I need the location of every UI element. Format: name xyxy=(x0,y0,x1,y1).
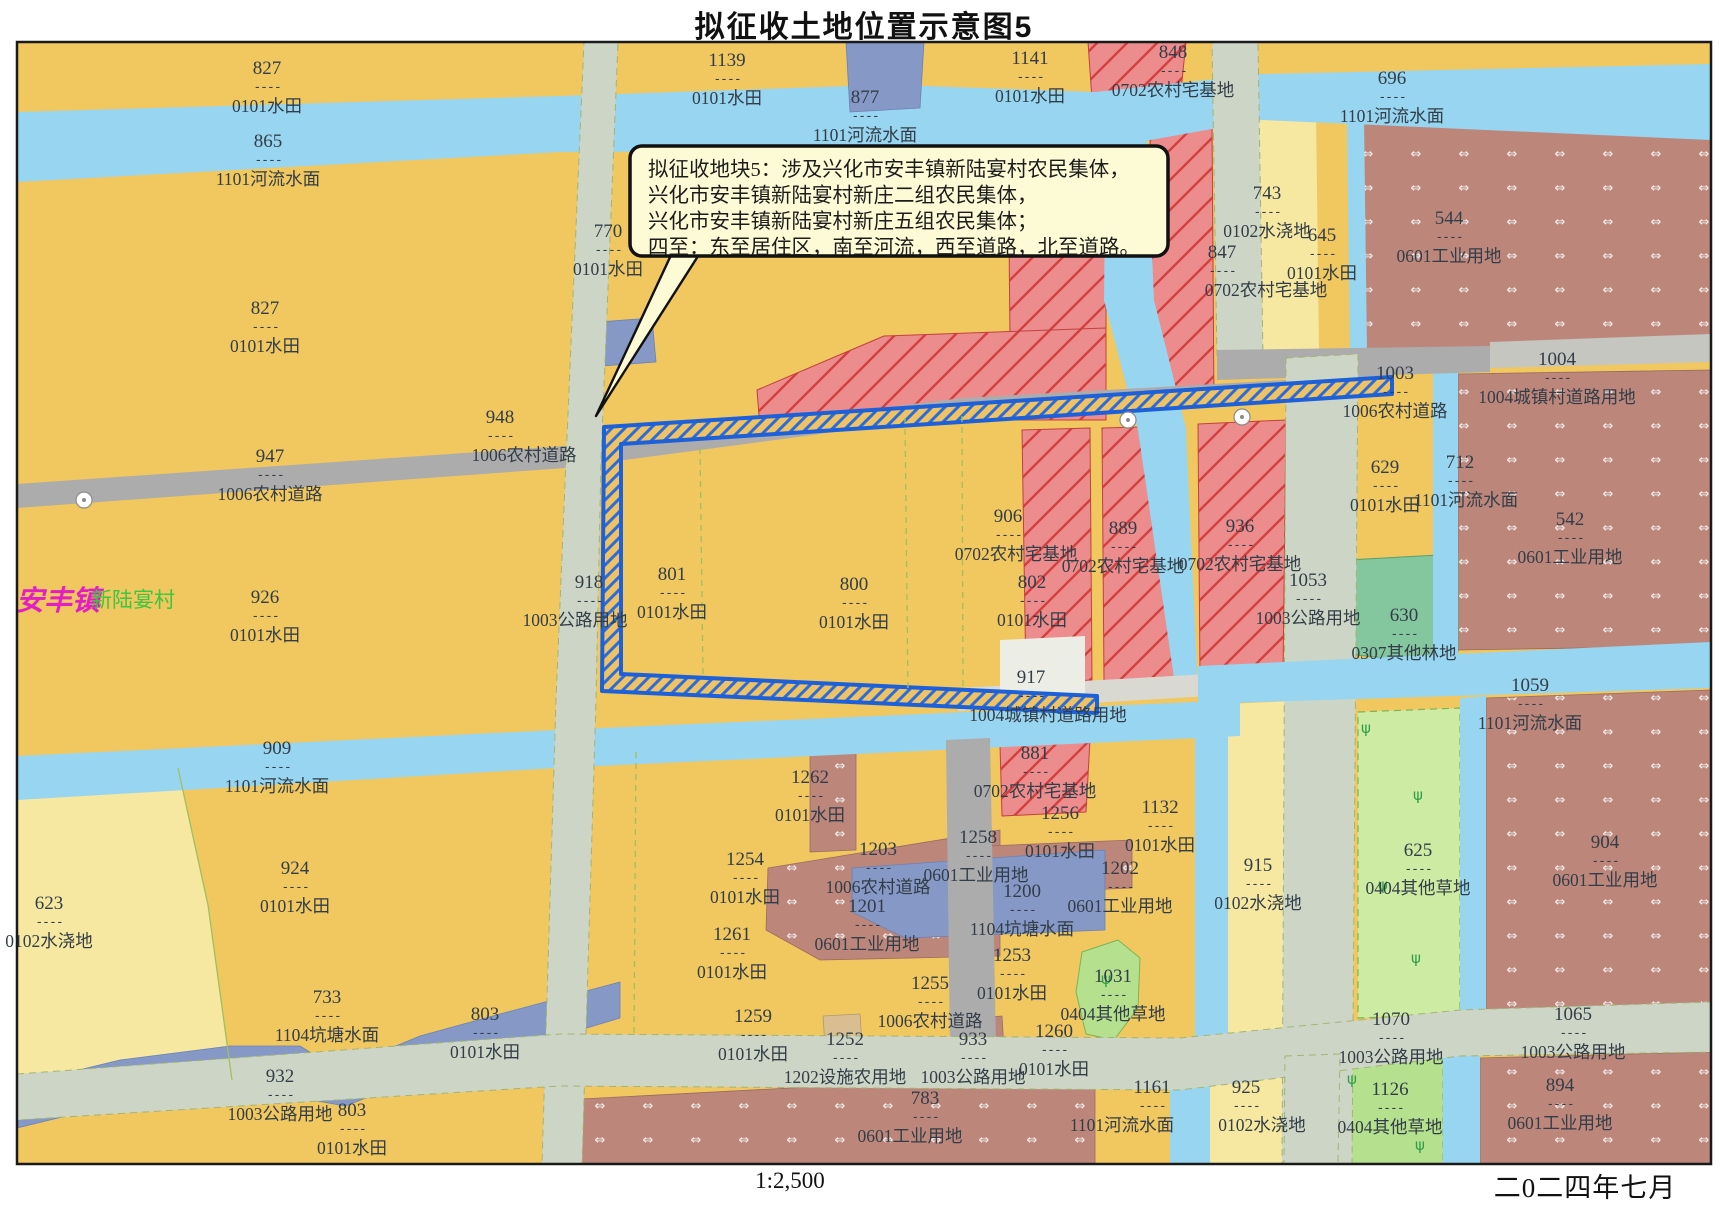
parcel-landuse: 1006农村道路 xyxy=(1343,401,1448,421)
parcel-number: 877 xyxy=(851,87,880,108)
grass-icon: ψ xyxy=(1411,949,1421,967)
parcel-landuse: 0404其他草地 xyxy=(1061,1004,1166,1024)
parcel-divider: ---- xyxy=(266,1088,293,1103)
parcel-number: 948 xyxy=(486,407,515,428)
parcel-number: 1254 xyxy=(726,849,765,870)
parcel-number: 1260 xyxy=(1035,1021,1073,1042)
parcel-landuse: 0102水浇地 xyxy=(5,931,93,951)
grass-icon: ψ xyxy=(1415,1136,1425,1154)
parcel-divider: ---- xyxy=(251,609,278,624)
parcel-landuse: 0702农村宅基地 xyxy=(1062,556,1185,576)
parcel-label-1258: 1258---- xyxy=(959,827,997,864)
parcel-number: 783 xyxy=(911,1088,940,1109)
parcel-number: 932 xyxy=(266,1066,295,1087)
map-svg: ⇔ψψψψψψψ827----0101水田865----1101河流水面827-… xyxy=(0,0,1728,1206)
parcel-landuse: 1101河流水面 xyxy=(813,125,917,145)
parcel-landuse: 1101河流水面 xyxy=(225,776,329,796)
parcel-landuse: 0102水浇地 xyxy=(1214,893,1302,913)
parcel-landuse: 0601工业用地 xyxy=(1518,547,1623,567)
parcel-number: 625 xyxy=(1404,840,1433,861)
parcel-divider: ---- xyxy=(1208,264,1235,279)
parcel-landuse: 0101水田 xyxy=(1019,1059,1089,1079)
parcel-divider: ---- xyxy=(1018,594,1045,609)
parcel-landuse: 0101水田 xyxy=(637,602,707,622)
parcel-landuse: 1101河流水面 xyxy=(1478,713,1582,733)
parcel-divider: ---- xyxy=(1017,689,1044,704)
parcel-landuse: 1006农村道路 xyxy=(472,445,577,465)
parcel-divider: ---- xyxy=(575,594,602,609)
region-river-strip-915 xyxy=(1195,702,1228,1046)
parcel-divider: ---- xyxy=(1226,538,1253,553)
parcel-divider: ---- xyxy=(796,789,823,804)
parcel-number: 924 xyxy=(281,858,310,879)
parcel-number: 801 xyxy=(658,564,687,585)
parcel-divider: ---- xyxy=(998,967,1025,982)
parcel-landuse: 1006农村道路 xyxy=(218,484,323,504)
parcel-landuse: 1004城镇村道路用地 xyxy=(1478,387,1636,407)
parcel-number: 915 xyxy=(1244,855,1273,876)
parcel-divider: ---- xyxy=(1543,371,1570,386)
parcel-landuse: 0101水田 xyxy=(230,625,300,645)
parcel-landuse: 0101水田 xyxy=(995,86,1065,106)
parcel-divider: ---- xyxy=(959,1051,986,1066)
parcel-landuse: 0601工业用地 xyxy=(1508,1113,1613,1133)
parcel-number: 865 xyxy=(254,131,283,152)
parcel-landuse: 0101水田 xyxy=(718,1044,788,1064)
parcel-landuse: 0101水田 xyxy=(997,610,1067,630)
parcel-divider: ---- xyxy=(1040,1043,1067,1058)
parcel-number: 800 xyxy=(840,574,869,595)
parcel-divider: ---- xyxy=(1099,988,1126,1003)
road-circle-dot-icon xyxy=(1126,418,1130,422)
parcel-divider: ---- xyxy=(338,1122,365,1137)
parcel-landuse: 0307其他林地 xyxy=(1352,643,1457,663)
parcel-landuse: 0101水田 xyxy=(260,896,330,916)
scale-label: 1:2,500 xyxy=(690,1168,890,1194)
parcel-landuse: 0101水田 xyxy=(317,1138,387,1158)
parcel-divider: ---- xyxy=(864,861,891,876)
parcel-divider: ---- xyxy=(964,849,991,864)
grass-icon: ψ xyxy=(1347,1070,1357,1088)
parcel-number: 712 xyxy=(1446,452,1475,473)
parcel-number: 1053 xyxy=(1289,570,1327,591)
parcel-number: 1139 xyxy=(708,50,745,71)
parcel-number: 743 xyxy=(1253,183,1282,204)
parcel-number: 1258 xyxy=(959,827,997,848)
parcel-divider: ---- xyxy=(1404,862,1431,877)
parcel-landuse: 1003公路用地 xyxy=(1256,608,1361,628)
parcel-number: 803 xyxy=(471,1004,500,1025)
parcel-number: 947 xyxy=(256,446,285,467)
parcel-divider: ---- xyxy=(916,995,943,1010)
parcel-landuse: 0101水田 xyxy=(1125,835,1195,855)
parcel-divider: ---- xyxy=(281,880,308,895)
parcel-number: 1262 xyxy=(791,767,829,788)
parcel-number: 803 xyxy=(338,1100,367,1121)
parcel-divider: ---- xyxy=(1021,765,1048,780)
parcel-landuse: 1006农村道路 xyxy=(826,877,931,897)
parcel-number: 847 xyxy=(1208,242,1237,263)
parcel-landuse: 0101水田 xyxy=(573,259,643,279)
parcel-divider: ---- xyxy=(1376,1101,1403,1116)
parcel-landuse: 0102水浇地 xyxy=(1218,1115,1306,1135)
parcel-landuse: 1003公路用地 xyxy=(228,1104,333,1124)
parcel-number: 904 xyxy=(1591,832,1620,853)
parcel-landuse: 0601工业用地 xyxy=(858,1126,963,1146)
parcel-divider: ---- xyxy=(251,320,278,335)
parcel-divider: ---- xyxy=(853,918,880,933)
parcel-number: 1031 xyxy=(1094,966,1132,987)
parcel-number: 936 xyxy=(1226,516,1255,537)
parcel-divider: ---- xyxy=(1308,247,1335,262)
parcel-landuse: 1104坑塘水面 xyxy=(970,919,1074,939)
parcel-divider: ---- xyxy=(1253,205,1280,220)
region-industrial-894 xyxy=(1480,1052,1711,1164)
parcel-divider: ---- xyxy=(1378,90,1405,105)
parcel-landuse: 0702农村宅基地 xyxy=(974,781,1097,801)
parcel-landuse: 0404其他草地 xyxy=(1338,1117,1443,1137)
parcel-divider: ---- xyxy=(1516,697,1543,712)
parcel-number: 1252 xyxy=(826,1029,864,1050)
parcel-number: 542 xyxy=(1556,509,1585,530)
parcel-number: 1202 xyxy=(1101,858,1139,879)
parcel-landuse: 1003公路用地 xyxy=(523,610,628,630)
parcel-number: 1256 xyxy=(1041,803,1079,824)
parcel-number: 629 xyxy=(1371,457,1400,478)
parcel-divider: ---- xyxy=(594,243,621,258)
parcel-number: 848 xyxy=(1159,42,1188,63)
callout-text-line: 兴化市安丰镇新陆宴村新庄二组农民集体， xyxy=(648,184,1038,207)
parcel-divider: ---- xyxy=(1377,1031,1404,1046)
parcel-landuse: 1101河流水面 xyxy=(216,169,320,189)
parcel-landuse: 0702农村宅基地 xyxy=(955,544,1078,564)
parcel-divider: ---- xyxy=(1232,1099,1259,1114)
parcel-divider: ---- xyxy=(1146,819,1173,834)
parcel-number: 1253 xyxy=(993,945,1031,966)
parcel-number: 926 xyxy=(251,587,280,608)
region-road-1003-bottom-leg xyxy=(1284,1054,1340,1164)
parcel-divider: ---- xyxy=(1381,385,1408,400)
region-industrial-904 xyxy=(1486,690,1711,1016)
region-river-strip-625l xyxy=(1443,1042,1480,1164)
parcel-number: 1126 xyxy=(1371,1079,1408,1100)
parcel-divider: ---- xyxy=(1244,877,1271,892)
callout-text-line: 兴化市安丰镇新陆宴村新庄五组农民集体； xyxy=(648,210,1038,233)
parcel-number: 1065 xyxy=(1554,1004,1592,1025)
parcel-divider: ---- xyxy=(1546,1097,1573,1112)
parcel-divider: ---- xyxy=(1159,64,1186,79)
callout-text-line: 拟征收地块5：涉及兴化市安丰镇新陆宴村农民集体， xyxy=(648,158,1130,181)
parcel-landuse: 0601工业用地 xyxy=(1553,870,1658,890)
parcel-number: 827 xyxy=(251,298,280,319)
parcel-divider: ---- xyxy=(731,871,758,886)
parcel-divider: ---- xyxy=(1556,531,1583,546)
grass-icon: ψ xyxy=(1413,786,1423,804)
parcel-number: 770 xyxy=(594,221,623,242)
parcel-number: 918 xyxy=(575,572,604,593)
parcel-number: 1161 xyxy=(1133,1077,1170,1098)
parcel-number: 881 xyxy=(1021,743,1050,764)
parcel-landuse: 0101水田 xyxy=(230,336,300,356)
parcel-landuse: 0102水浇地 xyxy=(1223,221,1311,241)
road-circle-dot-icon xyxy=(1240,415,1244,419)
parcel-number: 544 xyxy=(1435,208,1464,229)
parcel-divider: ---- xyxy=(1591,854,1618,869)
parcel-landuse: 1003公路用地 xyxy=(921,1067,1026,1087)
parcel-number: 1003 xyxy=(1376,363,1414,384)
parcel-number: 1059 xyxy=(1511,675,1549,696)
parcel-divider: ---- xyxy=(1446,474,1473,489)
grass-icon: ψ xyxy=(1361,719,1371,737)
parcel-number: 733 xyxy=(313,987,342,1008)
parcel-number: 925 xyxy=(1232,1077,1261,1098)
land-acquisition-map-page: 拟征收土地位置示意图5 ⇔ψψψψψψψ827----0101水田865----… xyxy=(0,0,1728,1206)
village-label: 新陆宴村 xyxy=(91,588,175,612)
parcel-divider: ---- xyxy=(253,80,280,95)
parcel-landuse: 1003公路用地 xyxy=(1521,1042,1626,1062)
parcel-divider: ---- xyxy=(1016,70,1043,85)
parcel-divider: ---- xyxy=(851,109,878,124)
parcel-landuse: 1101河流水面 xyxy=(1340,106,1444,126)
parcel-landuse: 0702农村宅基地 xyxy=(1179,554,1302,574)
map-canvas: ⇔ψψψψψψψ827----0101水田865----1101河流水面827-… xyxy=(0,0,1728,1206)
parcel-divider: ---- xyxy=(831,1051,858,1066)
parcel-number: 827 xyxy=(253,58,282,79)
parcel-number: 630 xyxy=(1390,605,1419,626)
parcel-landuse: 0101水田 xyxy=(1025,841,1095,861)
parcel-landuse: 1003公路用地 xyxy=(1339,1047,1444,1067)
region-industrial-542 xyxy=(1458,370,1711,650)
parcel-number: 933 xyxy=(959,1029,988,1050)
parcel-divider: ---- xyxy=(1371,479,1398,494)
parcel-landuse: 0101水田 xyxy=(450,1042,520,1062)
parcel-divider: ---- xyxy=(911,1110,938,1125)
parcel-landuse: 0702农村宅基地 xyxy=(1205,280,1328,300)
parcel-number: 1259 xyxy=(734,1006,772,1027)
parcel-divider: ---- xyxy=(994,528,1021,543)
parcel-landuse: 0101水田 xyxy=(232,96,302,116)
parcel-divider: ---- xyxy=(1109,540,1136,555)
parcel-divider: ---- xyxy=(254,153,281,168)
parcel-divider: ---- xyxy=(1106,880,1133,895)
parcel-number: 1255 xyxy=(911,973,949,994)
parcel-number: 1203 xyxy=(859,839,897,860)
parcel-landuse: 1101河流水面 xyxy=(1414,490,1518,510)
callout-text-line: 四至：东至居住区，南至河流，西至道路，北至道路。 xyxy=(648,236,1140,259)
parcel-divider: ---- xyxy=(1138,1099,1165,1114)
parcel-number: 1261 xyxy=(713,924,751,945)
parcel-divider: ---- xyxy=(256,468,283,483)
parcel-number: 889 xyxy=(1109,518,1138,539)
parcel-landuse: 1006农村道路 xyxy=(878,1011,983,1031)
parcel-divider: ---- xyxy=(1435,230,1462,245)
parcel-number: 894 xyxy=(1546,1075,1575,1096)
parcel-number: 802 xyxy=(1018,572,1047,593)
parcel-divider: ---- xyxy=(1008,903,1035,918)
parcel-landuse: 1202设施农用地 xyxy=(784,1067,907,1087)
parcel-landuse: 0101水田 xyxy=(692,88,762,108)
parcel-divider: ---- xyxy=(1294,592,1321,607)
parcel-divider: ---- xyxy=(718,946,745,961)
parcel-divider: ---- xyxy=(35,915,62,930)
parcel-landuse: 0601工业用地 xyxy=(1397,246,1502,266)
parcel-number: 917 xyxy=(1017,667,1046,688)
parcel-number: 1004 xyxy=(1538,349,1577,370)
parcel-divider: ---- xyxy=(1559,1026,1586,1041)
region-river-sliver-645 xyxy=(1347,116,1367,354)
parcel-divider: ---- xyxy=(658,586,685,601)
parcel-landuse: 1101河流水面 xyxy=(1070,1115,1174,1135)
parcel-landuse: 0404其他草地 xyxy=(1366,878,1471,898)
parcel-landuse: 0101水田 xyxy=(1350,495,1420,515)
parcel-number: 1201 xyxy=(848,896,886,917)
parcel-number: 696 xyxy=(1378,68,1407,89)
parcel-number: 645 xyxy=(1308,225,1337,246)
parcel-landuse: 0101水田 xyxy=(977,983,1047,1003)
parcel-landuse: 1004城镇村道路用地 xyxy=(969,705,1127,725)
parcel-number: 906 xyxy=(994,506,1023,527)
parcel-number: 1141 xyxy=(1011,48,1048,69)
parcel-divider: ---- xyxy=(840,596,867,611)
parcel-landuse: 0601工业用地 xyxy=(1068,896,1173,916)
road-circle-dot-icon xyxy=(82,498,86,502)
parcel-landuse: 0101水田 xyxy=(697,962,767,982)
parcel-number: 1132 xyxy=(1141,797,1178,818)
parcel-number: 623 xyxy=(35,893,64,914)
parcel-landuse: 1104坑塘水面 xyxy=(275,1025,379,1045)
parcel-divider: ---- xyxy=(263,760,290,775)
parcel-landuse: 0601工业用地 xyxy=(815,934,920,954)
parcel-divider: ---- xyxy=(471,1026,498,1041)
parcel-number: 909 xyxy=(263,738,292,759)
region-river-strip-625u xyxy=(1460,696,1486,1046)
parcel-number: 1070 xyxy=(1372,1009,1410,1030)
parcel-divider: ---- xyxy=(313,1009,340,1024)
date-label: 二0二四年七月 xyxy=(1442,1166,1728,1205)
parcel-divider: ---- xyxy=(713,72,740,87)
standalone-industrial-label: 0601工业用地 xyxy=(924,865,1029,885)
parcel-divider: ---- xyxy=(1046,825,1073,840)
parcel-landuse: 0702农村宅基地 xyxy=(1112,80,1235,100)
parcel-divider: ---- xyxy=(739,1028,766,1043)
parcel-landuse: 0101水田 xyxy=(775,805,845,825)
parcel-divider: ---- xyxy=(1390,627,1417,642)
parcel-landuse: 0101水田 xyxy=(710,887,780,907)
parcel-divider: ---- xyxy=(486,429,513,444)
parcel-landuse: 0101水田 xyxy=(819,612,889,632)
